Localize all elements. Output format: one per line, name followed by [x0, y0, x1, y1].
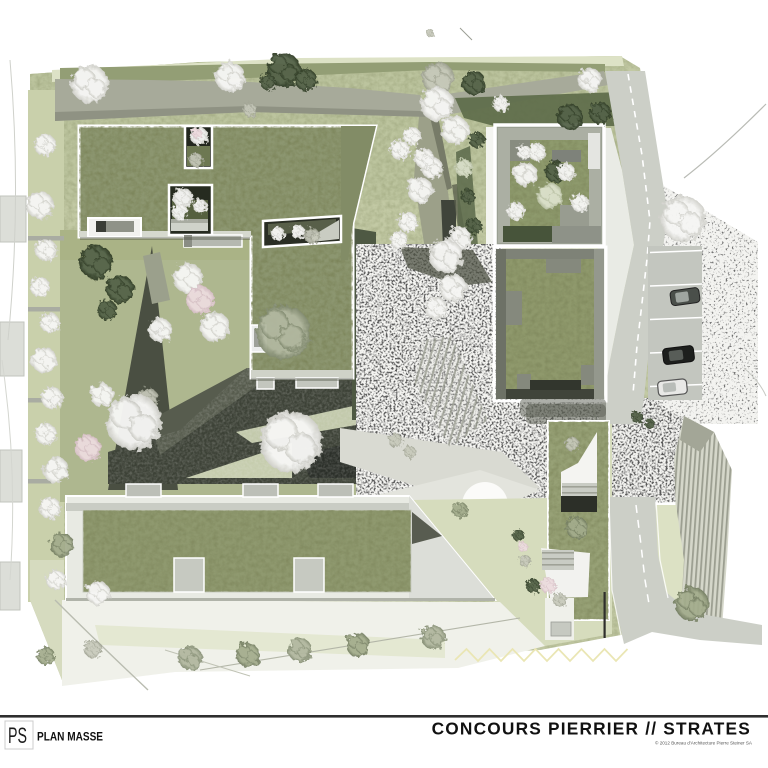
svg-text:© 2012 Bureau d'Architecture P: © 2012 Bureau d'Architecture Pierre Stei…	[655, 740, 753, 746]
svg-text:PLAN MASSE: PLAN MASSE	[37, 732, 103, 744]
svg-text:CONCOURS PIERRIER // STRATES: CONCOURS PIERRIER // STRATES	[432, 719, 751, 739]
svg-text:PS: PS	[8, 723, 27, 748]
